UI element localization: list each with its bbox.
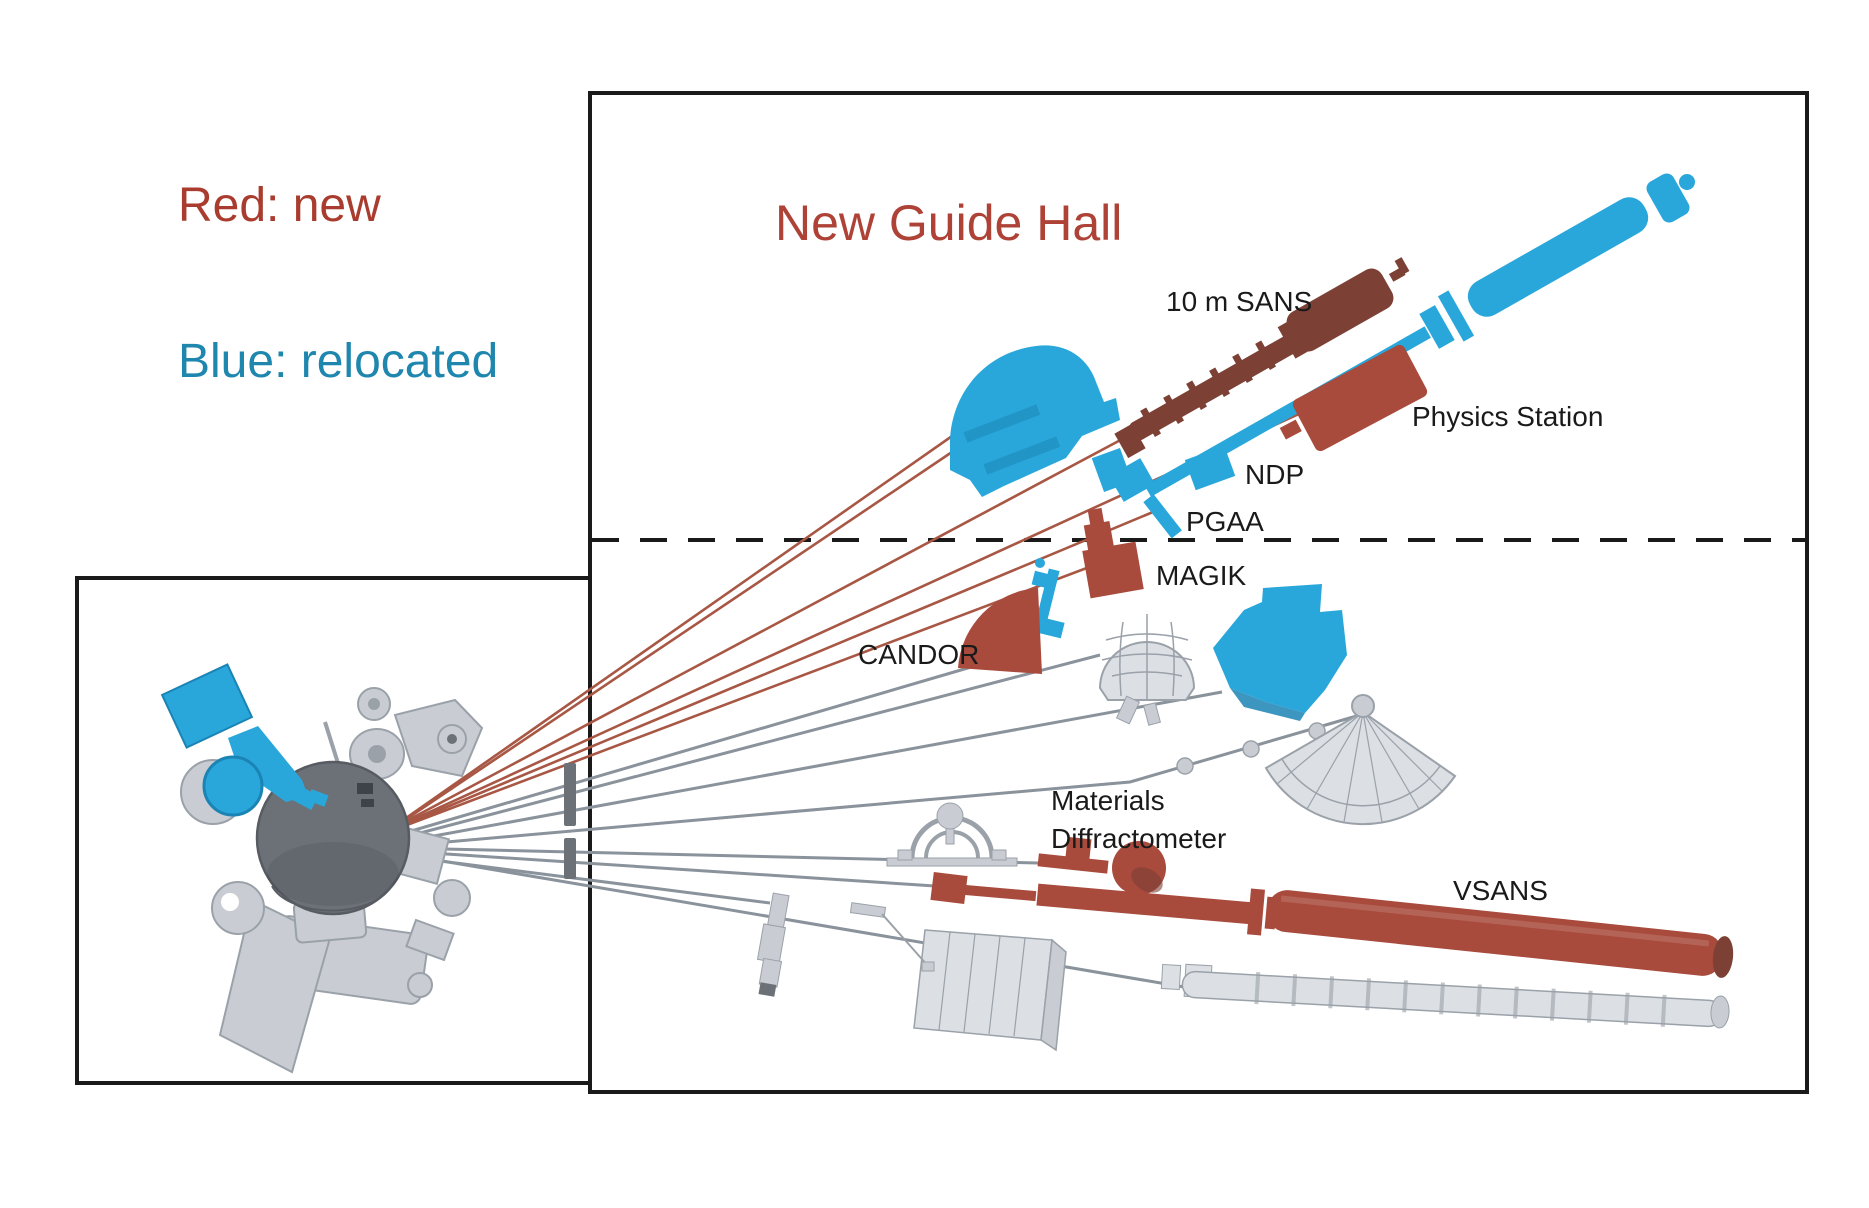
label-candor: CANDOR <box>858 636 979 674</box>
legend-blue-relocated: Blue: relocated <box>178 334 498 389</box>
beam-shutters <box>564 763 576 879</box>
diagram-title: New Guide Hall <box>775 194 1122 252</box>
label-10m-sans: 10 m SANS <box>1166 283 1312 321</box>
legend-red-new: Red: new <box>178 178 381 233</box>
diagram-canvas: Red: new Blue: relocated New Guide Hall … <box>0 0 1869 1208</box>
label-materials-diffractometer: Materials Diffractometer <box>1051 782 1226 858</box>
label-physics-station: Physics Station <box>1412 398 1603 436</box>
label-ndp: NDP <box>1245 456 1304 494</box>
label-materials-line1: Materials <box>1051 782 1226 820</box>
label-materials-line2: Diffractometer <box>1051 820 1226 858</box>
label-vsans: VSANS <box>1453 872 1548 910</box>
label-pgaa: PGAA <box>1186 503 1264 541</box>
label-magik: MAGIK <box>1156 557 1246 595</box>
